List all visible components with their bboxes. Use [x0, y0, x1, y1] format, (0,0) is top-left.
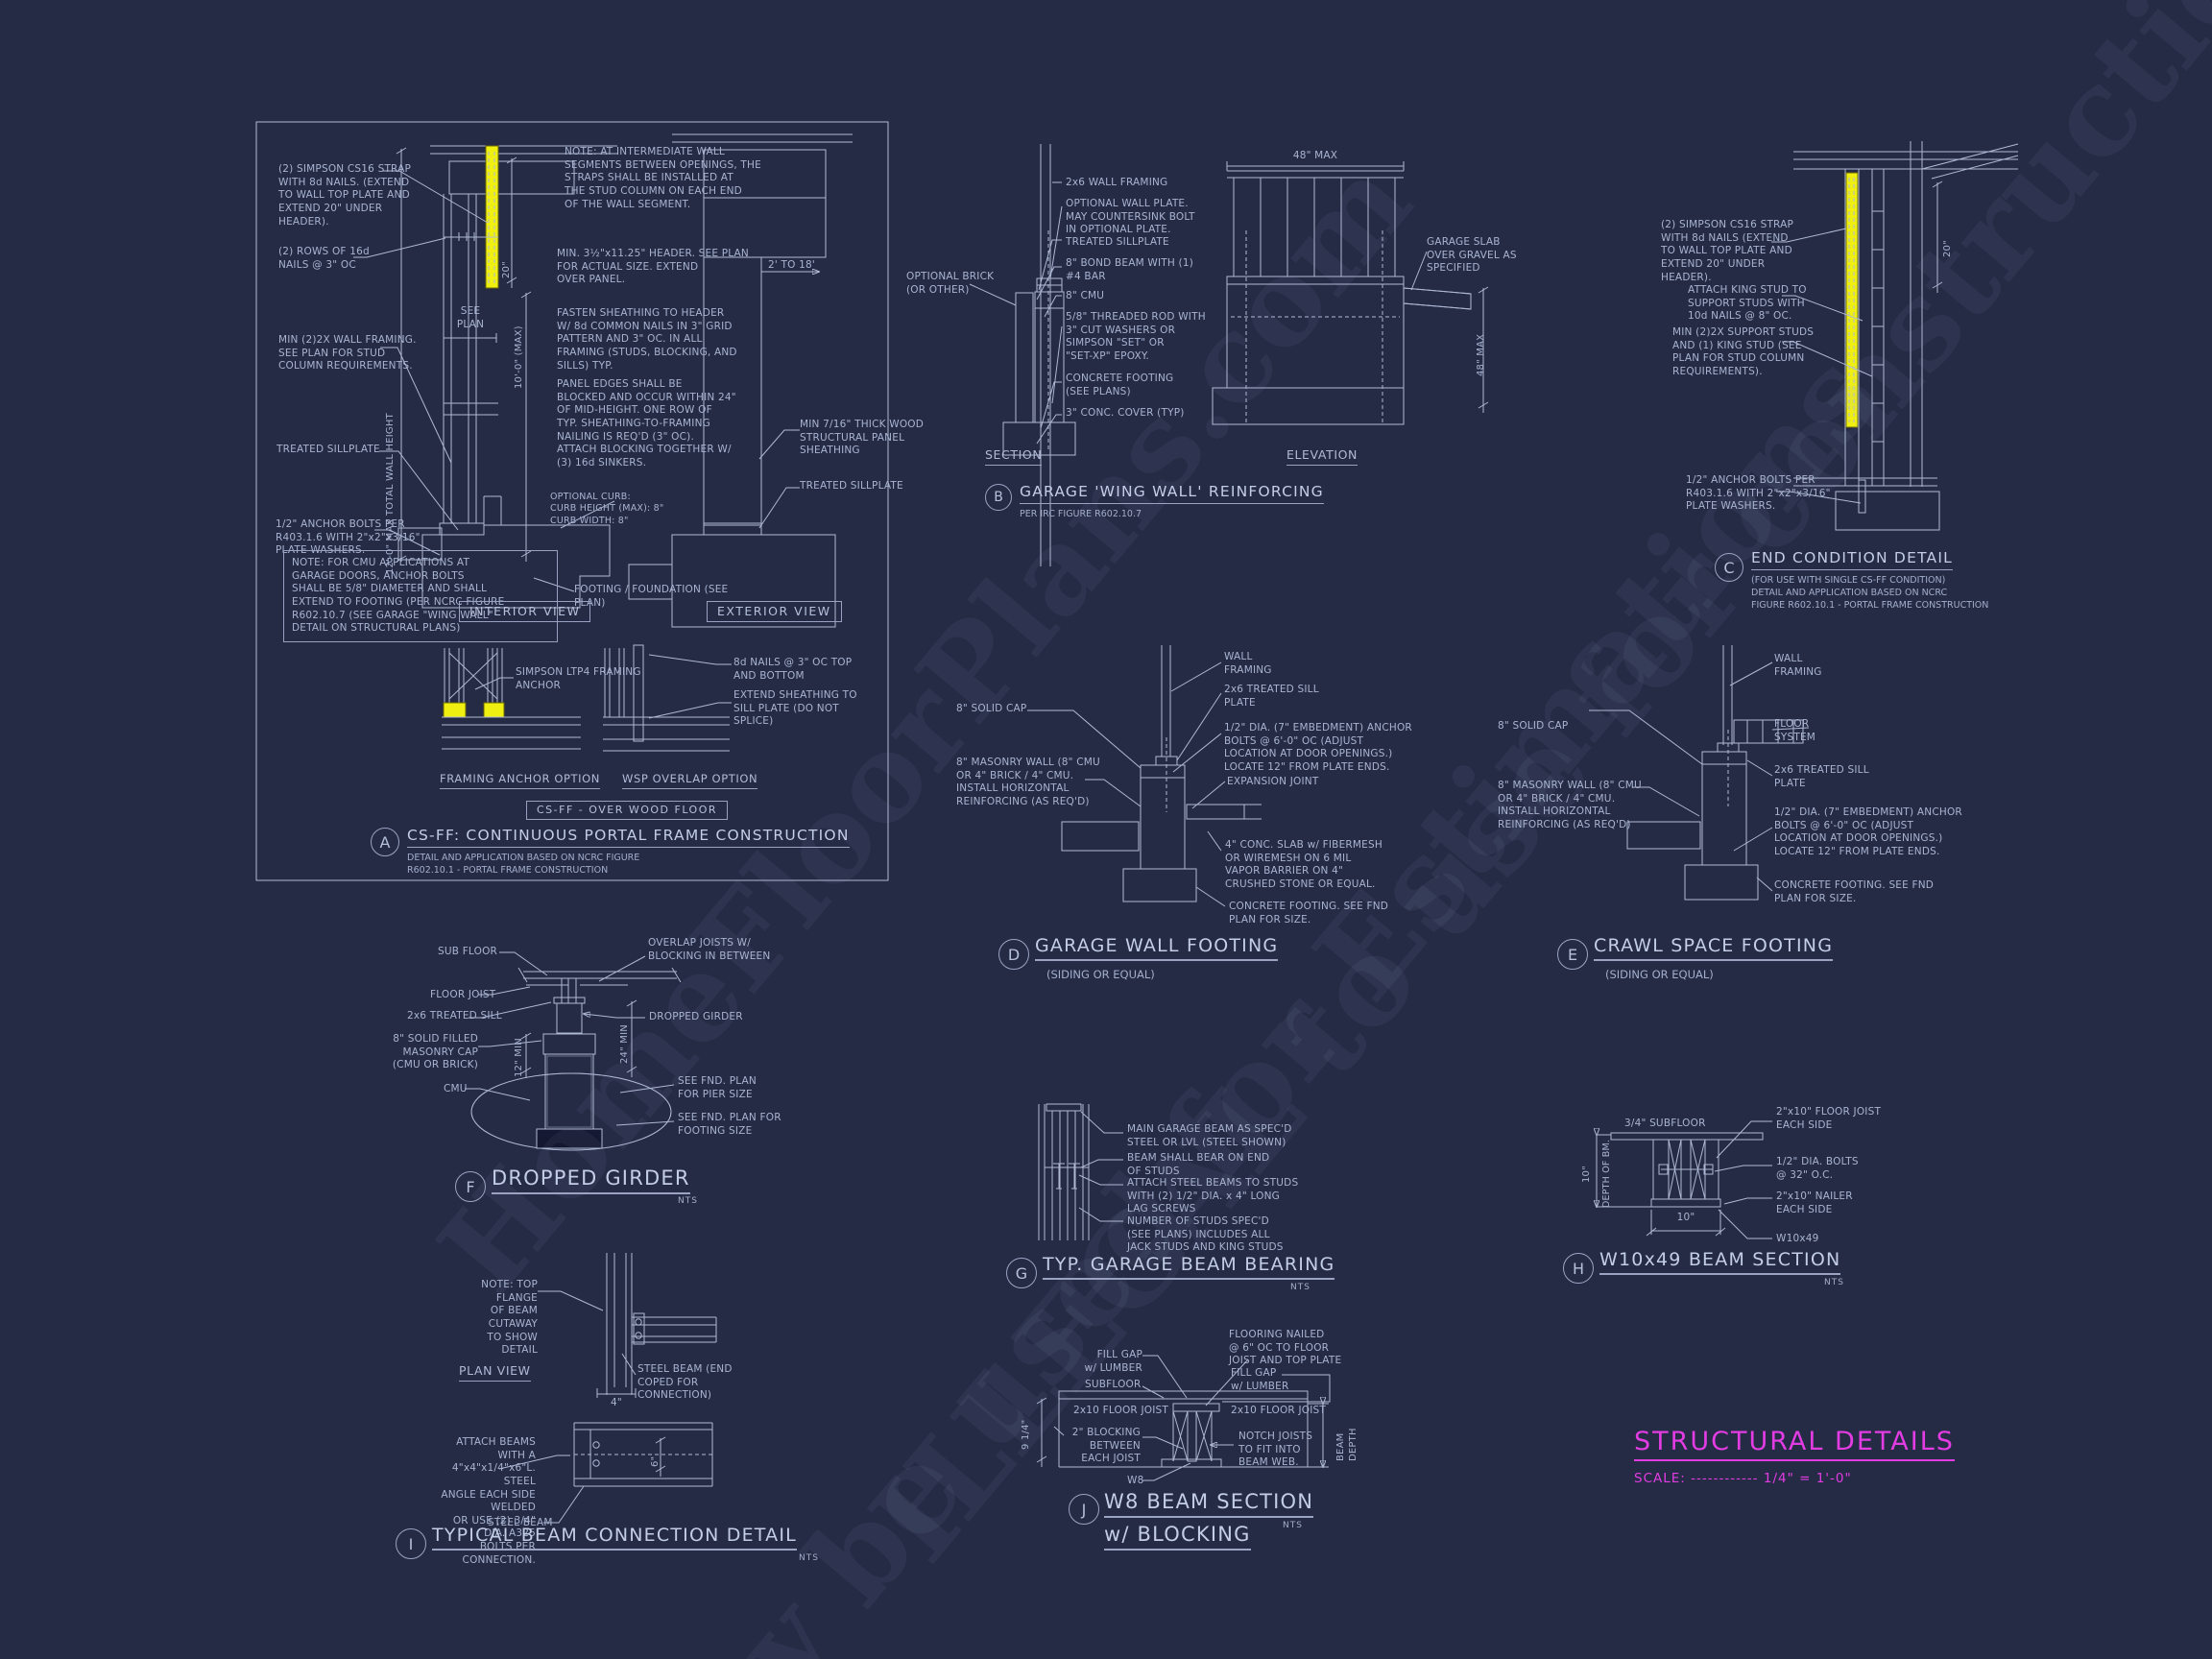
detail-b-subtitle: PER IRC FIGURE R602.10.7 — [1020, 509, 1142, 521]
label-a-over-wood-floor: CS-FF - OVER WOOD FLOOR — [526, 801, 728, 820]
label-h-w10x49: W10x49 — [1776, 1233, 1819, 1246]
detail-c-letter: C — [1715, 553, 1743, 582]
label-d-solid-cap: 8" SOLID CAP — [956, 703, 1026, 716]
label-b-garage-slab: GARAGE SLAB OVER GRAVEL AS SPECIFIED — [1427, 236, 1517, 276]
label-d-anchor-bolts: 1/2" DIA. (7" EMBEDMENT) ANCHOR BOLTS @ … — [1224, 722, 1412, 775]
detail-i-nts: NTS — [799, 1553, 819, 1563]
label-f-sub-floor: SUB FLOOR — [438, 946, 497, 959]
detail-d-subtitle: (SIDING OR EQUAL) — [1046, 968, 1155, 983]
detail-j-nts: NTS — [1283, 1521, 1303, 1530]
detail-f-letter: F — [455, 1171, 486, 1202]
label-i-plan-view: PLAN VIEW — [459, 1363, 531, 1382]
label-a-exterior-view: EXTERIOR VIEW — [707, 601, 842, 622]
label-f-dropped-girder: DROPPED GIRDER — [649, 1011, 743, 1024]
detail-j-letter: J — [1069, 1494, 1099, 1525]
detail-c-subtitle: (FOR USE WITH SINGLE CS-FF CONDITION) DE… — [1751, 575, 1988, 612]
dim-h-depth-of-bm: DEPTH OF BM. — [1601, 1140, 1613, 1208]
dim-a-20in: 20" — [500, 261, 513, 278]
dim-j-beam-depth: BEAM DEPTH — [1334, 1428, 1359, 1461]
label-j-fill-gap-left: FILL GAP w/ LUMBER — [1083, 1349, 1142, 1375]
label-j-notch-joists: NOTCH JOISTS TO FIT INTO BEAM WEB. — [1238, 1431, 1312, 1470]
detail-d-letter: D — [998, 939, 1029, 970]
detail-a-title: CS-FF: CONTINUOUS PORTAL FRAME CONSTRUCT… — [407, 827, 850, 848]
label-j-floor-joist-right: 2x10 FLOOR JOIST — [1231, 1405, 1326, 1418]
panel-f-drawing — [465, 952, 681, 1150]
label-e-masonry-wall: 8" MASONRY WALL (8" CMU OR 4" BRICK / 4"… — [1498, 780, 1642, 832]
label-h-subfloor: 3/4" SUBFLOOR — [1624, 1118, 1706, 1131]
label-j-w8: W8 — [1127, 1475, 1143, 1488]
label-b-conc-cover: 3" CONC. COVER (TYP) — [1066, 407, 1185, 421]
dim-i-6in: 6" — [649, 1456, 661, 1467]
dim-j-9-quarter: 9 1/4" — [1020, 1420, 1032, 1450]
label-a-rows16d: (2) ROWS OF 16d NAILS @ 3" OC — [278, 246, 370, 272]
label-e-sill-plate: 2x6 TREATED SILL PLATE — [1774, 764, 1869, 790]
label-f-pier-size: SEE FND. PLAN FOR PIER SIZE — [678, 1075, 757, 1101]
label-j-floor-joist-left: 2x10 FLOOR JOIST — [1073, 1405, 1168, 1418]
label-a-range: 2' TO 18' — [768, 259, 815, 273]
detail-b-title: GARAGE 'WING WALL' REINFORCING — [1020, 483, 1324, 504]
label-c-anchor-bolts: 1/2" ANCHOR BOLTS PER R403.1.6 WITH 2"x2… — [1686, 474, 1831, 514]
note-a-fasten-sheathing: FASTEN SHEATHING TO HEADER W/ 8d COMMON … — [557, 307, 737, 373]
label-a-ltp4-anchor: SIMPSON LTP4 FRAMING ANCHOR — [516, 666, 641, 692]
label-b-sillplate: TREATED SILLPLATE — [1066, 236, 1169, 250]
label-a-wsp-overlap-option: WSP OVERLAP OPTION — [622, 772, 757, 789]
label-b-bond-beam: 8" BOND BEAM WITH (1) #4 BAR — [1066, 257, 1193, 283]
label-b-wall-framing: 2x6 WALL FRAMING — [1066, 177, 1167, 190]
note-a-panel-edges: PANEL EDGES SHALL BE BLOCKED AND OCCUR W… — [557, 378, 736, 469]
label-j-flooring-nailed: FLOORING NAILED @ 6" OC TO FLOOR JOIST A… — [1229, 1329, 1341, 1368]
detail-e-letter: E — [1557, 939, 1588, 970]
note-i-top-flange: NOTE: TOP FLANGE OF BEAM CUTAWAY TO SHOW… — [451, 1279, 538, 1358]
label-j-subfloor: SUBFLOOR — [1085, 1379, 1142, 1392]
detail-b-letter: B — [985, 484, 1012, 511]
detail-h-title: W10x49 BEAM SECTION — [1599, 1249, 1840, 1275]
label-f-treated-sill: 2x6 TREATED SILL — [407, 1010, 502, 1023]
dim-a-see-plan: SEE PLAN — [451, 305, 490, 331]
label-a-wall-framing: MIN (2)2X WALL FRAMING. SEE PLAN FOR STU… — [278, 334, 417, 373]
label-b-section: SECTION — [985, 447, 1042, 466]
label-f-overlap-joists: OVERLAP JOISTS W/ BLOCKING IN BETWEEN — [648, 937, 770, 963]
detail-h-letter: H — [1563, 1253, 1594, 1284]
label-b-optional-plate: OPTIONAL WALL PLATE. MAY COUNTERSINK BOL… — [1066, 198, 1195, 237]
detail-d-title: GARAGE WALL FOOTING — [1035, 935, 1278, 961]
label-c-support-studs: MIN (2)2X SUPPORT STUDS AND (1) KING STU… — [1672, 326, 1814, 379]
label-h-floor-joist: 2"x10" FLOOR JOIST EACH SIDE — [1776, 1106, 1881, 1132]
detail-g-title: TYP. GARAGE BEAM BEARING — [1043, 1254, 1334, 1280]
label-e-anchor-bolts: 1/2" DIA. (7" EMBEDMENT) ANCHOR BOLTS @ … — [1774, 806, 1962, 859]
label-e-solid-cap: 8" SOLID CAP — [1498, 720, 1568, 733]
detail-f-nts: NTS — [678, 1196, 698, 1206]
label-f-masonry-cap: 8" SOLID FILLED MASONRY CAP (CMU OR BRIC… — [392, 1033, 478, 1072]
dim-b-48-max-top: 48" MAX — [1277, 150, 1354, 163]
label-a-sheathing: MIN 7/16" THICK WOOD STRUCTURAL PANEL SH… — [800, 419, 924, 458]
label-a-optional-curb: OPTIONAL CURB: CURB HEIGHT (MAX): 8" CUR… — [550, 492, 663, 527]
blueprint-sheet: HomeFloorPlans.com ILLEGAL to use for co… — [0, 0, 2212, 1659]
sheet-title: STRUCTURAL DETAILS — [1634, 1427, 1955, 1461]
detail-h-nts: NTS — [1824, 1278, 1844, 1287]
label-a-framing-anchor-option: FRAMING ANCHOR OPTION — [440, 772, 600, 789]
label-b-threaded-rod: 5/8" THREADED ROD WITH 3" CUT WASHERS OR… — [1066, 311, 1206, 364]
detail-e-title: CRAWL SPACE FOOTING — [1594, 935, 1833, 961]
label-e-floor-system: FLOOR SYSTEM — [1774, 718, 1815, 744]
label-b-concrete-footing: CONCRETE FOOTING (SEE PLANS) — [1066, 373, 1173, 398]
label-g-main-beam: MAIN GARAGE BEAM AS SPEC'D STEEL OR LVL … — [1127, 1123, 1292, 1149]
label-d-concrete-footing: CONCRETE FOOTING. SEE FND PLAN FOR SIZE. — [1229, 901, 1388, 926]
detail-i-letter: I — [396, 1528, 426, 1559]
label-a-sillplate-ext: TREATED SILLPLATE — [800, 480, 903, 493]
note-a-intermediate-wall: NOTE: AT INTERMEDIATE WALL SEGMENTS BETW… — [565, 146, 761, 211]
detail-j-title-line2: w/ BLOCKING — [1104, 1523, 1251, 1551]
label-a-8d-nails: 8d NAILS @ 3" OC TOP AND BOTTOM — [733, 657, 852, 683]
detail-e-subtitle: (SIDING OR EQUAL) — [1605, 968, 1714, 983]
dim-h-10in-horiz: 10" — [1667, 1212, 1705, 1225]
detail-j-title-line1: W8 BEAM SECTION — [1104, 1490, 1313, 1518]
label-a-footing: FOOTING / FOUNDATION (SEE PLAN) — [574, 584, 728, 610]
label-h-nailer: 2"x10" NAILER EACH SIDE — [1776, 1190, 1853, 1216]
label-d-conc-slab: 4" CONC. SLAB w/ FIBERMESH OR WIREMESH O… — [1225, 839, 1382, 892]
label-b-optional-brick: OPTIONAL BRICK (OR OTHER) — [906, 271, 994, 297]
dim-i-4in: 4" — [597, 1397, 636, 1410]
dim-c-20in: 20" — [1941, 240, 1954, 257]
label-c-strap: (2) SIMPSON CS16 STRAP WITH 8d NAILS (EX… — [1661, 219, 1793, 284]
dim-b-48-max-right: 48" MAX — [1475, 334, 1487, 376]
label-b-cmu: 8" CMU — [1066, 290, 1104, 303]
label-h-bolts: 1/2" DIA. BOLTS @ 32" O.C. — [1776, 1156, 1859, 1182]
detail-g-letter: G — [1006, 1258, 1037, 1288]
dim-h-10in-vert: 10" — [1580, 1166, 1593, 1183]
label-i-steel-beam-coped: STEEL BEAM (END COPED FOR CONNECTION) — [637, 1363, 733, 1403]
label-e-wall-framing: WALL FRAMING — [1774, 653, 1822, 679]
label-a-strap: (2) SIMPSON CS16 STRAP WITH 8d NAILS. (E… — [278, 163, 411, 228]
note-a-cmu-applications: NOTE: FOR CMU APPLICATIONS AT GARAGE DOO… — [283, 550, 558, 642]
label-a-interior-view: INTERIOR VIEW — [459, 601, 590, 622]
label-g-attach-beams: ATTACH STEEL BEAMS TO STUDS WITH (2) 1/2… — [1127, 1177, 1298, 1216]
label-e-concrete-footing: CONCRETE FOOTING. SEE FND PLAN FOR SIZE. — [1774, 879, 1934, 905]
detail-i-title: TYPICAL BEAM CONNECTION DETAIL — [432, 1525, 797, 1551]
detail-c-title: END CONDITION DETAIL — [1751, 549, 1953, 570]
label-d-wall-framing: WALL FRAMING — [1224, 651, 1272, 677]
label-f-footing-size: SEE FND. PLAN FOR FOOTING SIZE — [678, 1112, 781, 1138]
label-c-king-stud: ATTACH KING STUD TO SUPPORT STUDS WITH 1… — [1688, 284, 1807, 324]
label-f-cmu: CMU — [444, 1083, 468, 1096]
sheet-scale: SCALE: ------------ 1/4" = 1'-0" — [1634, 1471, 1852, 1486]
label-g-number-studs: NUMBER OF STUDS SPEC'D (SEE PLANS) INCLU… — [1127, 1215, 1284, 1255]
dim-f-12-min: 12" MIN — [513, 1038, 525, 1077]
dim-a-10ft-max: 10'-0" (MAX) — [513, 325, 525, 389]
detail-g-nts: NTS — [1290, 1283, 1310, 1292]
label-a-sillplate: TREATED SILLPLATE — [276, 444, 380, 457]
dim-f-24-min: 24" MIN — [618, 1024, 631, 1064]
label-f-floor-joist: FLOOR JOIST — [430, 989, 495, 1002]
detail-f-title: DROPPED GIRDER — [492, 1166, 690, 1194]
label-g-beam-bear: BEAM SHALL BEAR ON END OF STUDS — [1127, 1152, 1269, 1178]
label-d-masonry-wall: 8" MASONRY WALL (8" CMU OR 4" BRICK / 4"… — [956, 757, 1100, 809]
dim-a-wall-height: 12'-0" MAX TOTAL WALL HEIGHT — [384, 413, 397, 574]
detail-a-subtitle: DETAIL AND APPLICATION BASED ON NCRC FIG… — [407, 853, 639, 878]
label-a-extend-sheathing: EXTEND SHEATHING TO SILL PLATE (DO NOT S… — [733, 689, 857, 729]
label-d-expansion-joint: EXPANSION JOINT — [1227, 776, 1318, 789]
detail-a-letter: A — [371, 828, 399, 856]
label-b-elevation: ELEVATION — [1286, 447, 1358, 466]
label-j-blocking: 2" BLOCKING BETWEEN EACH JOIST — [1066, 1427, 1141, 1466]
label-d-sill-plate: 2x6 TREATED SILL PLATE — [1224, 684, 1319, 709]
note-a-header: MIN. 3½"x11.25" HEADER. SEE PLAN FOR ACT… — [557, 248, 749, 287]
panel-g-drawing — [1039, 1104, 1123, 1240]
label-j-fill-gap-right: FILL GAP w/ LUMBER — [1231, 1367, 1288, 1393]
